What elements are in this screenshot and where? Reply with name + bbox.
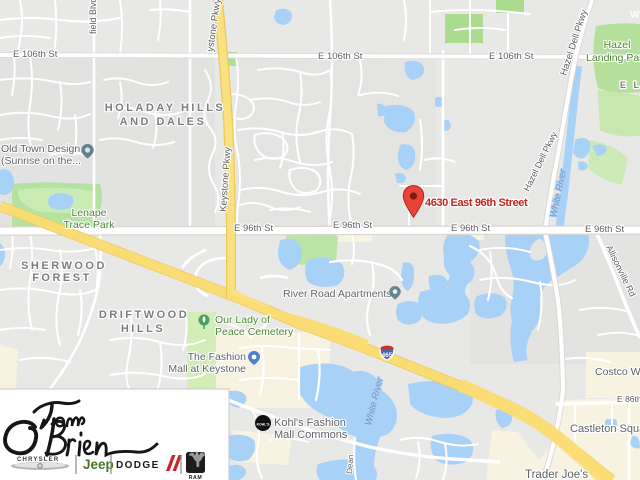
svg-text:E 86th: E 86th <box>617 394 640 404</box>
svg-text:E 96th St: E 96th St <box>451 223 490 234</box>
svg-text:Lenape: Lenape <box>71 207 106 219</box>
svg-text:E 96th St: E 96th St <box>585 224 624 235</box>
svg-text:Mall at Keystone: Mall at Keystone <box>168 363 246 375</box>
svg-text:KOHL'S: KOHL'S <box>257 423 270 427</box>
svg-text:HOLADAY HILLS: HOLADAY HILLS <box>105 102 226 114</box>
svg-text:Hazel: Hazel <box>604 39 631 51</box>
svg-text:AND DALES: AND DALES <box>120 116 207 128</box>
svg-text:DRIFTWOOD: DRIFTWOOD <box>99 309 189 321</box>
svg-text:CHRYSLER: CHRYSLER <box>17 457 59 463</box>
svg-text:E 106th St: E 106th St <box>489 51 534 62</box>
svg-text:Jeep: Jeep <box>83 457 114 472</box>
svg-text:Castleton Square: Castleton Square <box>570 423 640 435</box>
svg-text:4630 East 96th Street: 4630 East 96th Street <box>425 197 528 209</box>
svg-text:Our Lady of: Our Lady of <box>215 314 270 326</box>
svg-text:Trader Joe's: Trader Joe's <box>525 469 588 480</box>
svg-text:Peace Cemetery: Peace Cemetery <box>215 326 294 338</box>
svg-text:SHERWOOD: SHERWOOD <box>21 260 107 272</box>
svg-text:E 96th St: E 96th St <box>234 223 273 234</box>
svg-text:FOREST: FOREST <box>32 272 92 284</box>
svg-text:Dean: Dean <box>345 454 355 474</box>
svg-text:Kohl's Fashion: Kohl's Fashion <box>274 417 346 429</box>
svg-text:The Fashion: The Fashion <box>188 351 247 363</box>
svg-text:465: 465 <box>382 352 393 359</box>
svg-text:E 106th St: E 106th St <box>13 49 58 60</box>
svg-text:HILLS: HILLS <box>121 323 165 335</box>
svg-text:Mall Commons: Mall Commons <box>274 429 348 441</box>
svg-text:River Road Apartments: River Road Apartments <box>283 288 392 300</box>
svg-text:DODGE: DODGE <box>116 460 160 471</box>
svg-text:Costco Whol: Costco Whol <box>595 366 640 378</box>
svg-text:E 106th St: E 106th St <box>318 51 363 62</box>
svg-text:E 96th St: E 96th St <box>333 220 372 231</box>
svg-text:RAM: RAM <box>189 475 203 480</box>
svg-text:(Sunrise on the...: (Sunrise on the... <box>1 155 81 167</box>
svg-text:W: W <box>630 10 640 21</box>
svg-text:Old Town Design: Old Town Design <box>1 143 80 155</box>
svg-text:E L: E L <box>620 80 640 90</box>
svg-text:Landing Park: Landing Park <box>586 52 640 64</box>
svg-text:Trace Park: Trace Park <box>64 219 116 231</box>
svg-text:field Blvd: field Blvd <box>88 0 98 34</box>
